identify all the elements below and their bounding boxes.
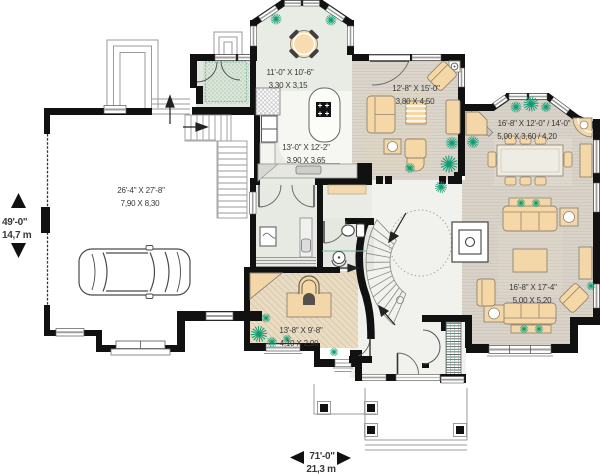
svg-text:7,90 X 8,30: 7,90 X 8,30 xyxy=(121,199,160,208)
svg-text:13'-0" X 12'-2": 13'-0" X 12'-2" xyxy=(282,143,330,152)
svg-text:11'-0" X 10'-6": 11'-0" X 10'-6" xyxy=(267,68,314,77)
svg-text:4,10 X 2,90: 4,10 X 2,90 xyxy=(280,339,319,348)
svg-text:3,90 X 3,65: 3,90 X 3,65 xyxy=(287,156,326,165)
svg-text:49'-0": 49'-0" xyxy=(2,217,28,228)
svg-text:5,00 X 3,60 / 4,20: 5,00 X 3,60 / 4,20 xyxy=(497,132,557,141)
svg-text:14,7 m: 14,7 m xyxy=(2,230,32,241)
svg-text:5,00 X 5,20: 5,00 X 5,20 xyxy=(513,296,552,305)
svg-text:3,80 X 4,50: 3,80 X 4,50 xyxy=(396,97,435,106)
svg-text:12'-8" X 15'-0": 12'-8" X 15'-0" xyxy=(392,84,440,93)
svg-text:21,3 m: 21,3 m xyxy=(306,464,336,474)
svg-text:16'-8" X 12'-0" / 14'-0": 16'-8" X 12'-0" / 14'-0" xyxy=(498,119,571,128)
svg-text:26'-4" X 27'-8": 26'-4" X 27'-8" xyxy=(117,186,165,195)
svg-text:3,30 X 3,15: 3,30 X 3,15 xyxy=(269,81,308,90)
svg-text:71'-0": 71'-0" xyxy=(309,451,335,462)
svg-text:13'-8" X 9'-8": 13'-8" X 9'-8" xyxy=(279,326,323,335)
svg-text:16'-8" X 17'-4": 16'-8" X 17'-4" xyxy=(509,283,557,292)
